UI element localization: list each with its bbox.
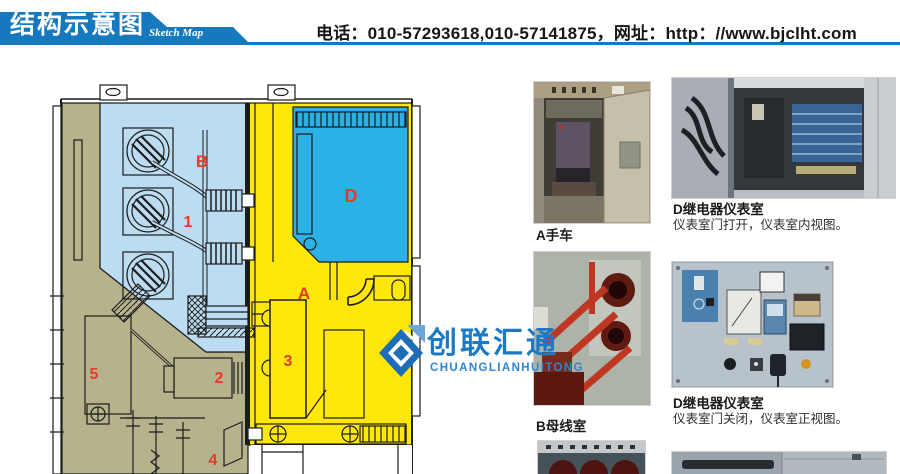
- label-breaker-room: A: [298, 284, 310, 303]
- photo-partial-bottom-left: [538, 441, 645, 474]
- structure-diagram: B 1 D A 3 2 5 4: [40, 80, 470, 474]
- photo-a-handcart: [534, 82, 650, 223]
- company-name-cn: 创联汇通: [427, 329, 559, 359]
- photo-caption-d-closed: D继电器仪表室: [673, 396, 764, 412]
- label-part-1: 1: [184, 214, 193, 231]
- page-title: 结构示意图: [10, 13, 145, 38]
- label-part-5: 5: [90, 366, 99, 383]
- label-part-3: 3: [284, 353, 293, 370]
- photo-caption-a: A手车: [536, 228, 573, 244]
- photo-partial-bottom-right: [672, 452, 886, 474]
- photo-caption-b: B母线室: [536, 419, 586, 435]
- photo-desc-d-closed: 仪表室门关闭，仪表室正视图。: [673, 412, 848, 426]
- label-instrument-room: D: [345, 186, 358, 206]
- instrument-room-region: [293, 107, 408, 262]
- label-busbar-room: B: [196, 152, 208, 171]
- company-logo-icon: [378, 325, 425, 383]
- photo-d-instrument-closed: [672, 262, 833, 387]
- label-part-2: 2: [215, 370, 224, 387]
- photo-d-instrument-open: [672, 78, 895, 198]
- contact-info: 电话：010-57293618,010-57141875，网址：http：//w…: [316, 19, 857, 44]
- page-title-english: Sketch Map: [149, 28, 203, 39]
- photo-desc-d-open: 仪表室门打开，仪表室内视图。: [673, 218, 848, 232]
- label-part-4: 4: [209, 452, 218, 469]
- company-name-en: CHUANGLIANHUITONG: [430, 363, 584, 375]
- photo-caption-d-open: D继电器仪表室: [673, 202, 764, 218]
